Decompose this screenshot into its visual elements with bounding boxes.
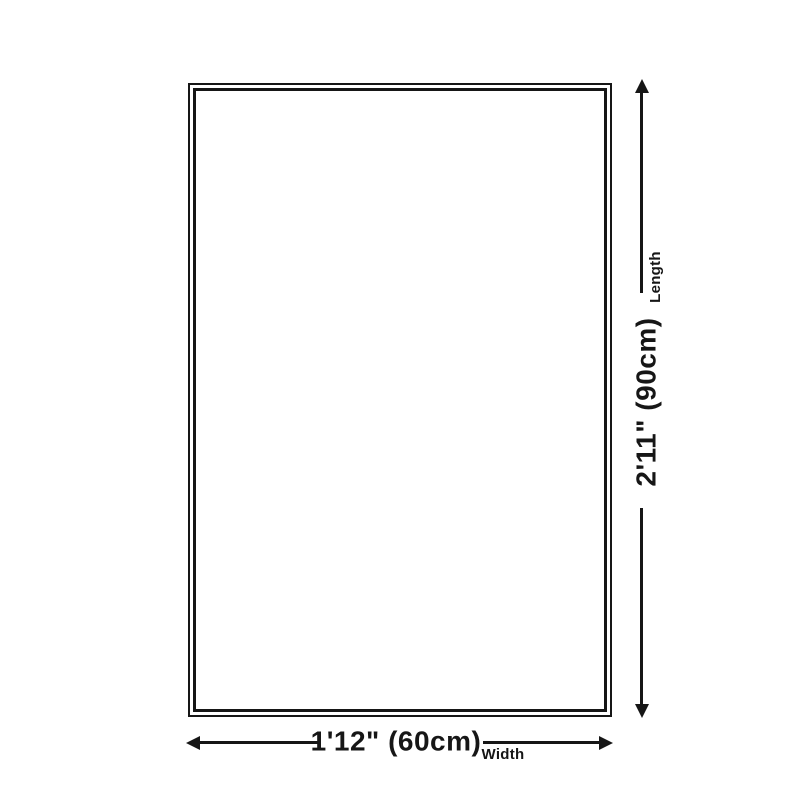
dimension-diagram: Length 2'11" (90cm) 1'12" (60cm) Width <box>0 0 800 800</box>
arrow-down-icon <box>635 704 649 718</box>
length-arrow-line-top <box>640 92 643 293</box>
length-value-label: 2'11" (90cm) <box>632 317 663 486</box>
width-arrow-line-left <box>198 741 318 744</box>
width-axis-label: Width <box>481 747 524 764</box>
arrow-up-icon <box>635 79 649 93</box>
width-value-label: 1'12" (60cm) <box>311 727 482 758</box>
arrow-right-icon <box>599 736 613 750</box>
product-inner-border <box>193 88 607 712</box>
length-axis-label: Length <box>648 251 665 303</box>
product-outline <box>188 83 612 717</box>
length-arrow-line-bottom <box>640 508 643 706</box>
width-arrow-line-right <box>483 741 602 744</box>
